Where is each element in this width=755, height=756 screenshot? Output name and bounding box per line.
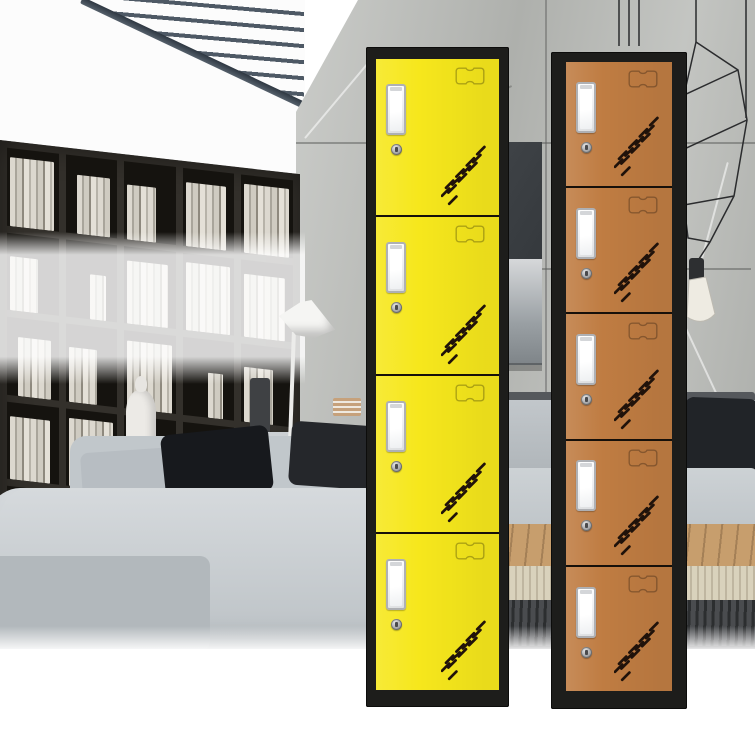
card-slot-face — [390, 246, 402, 289]
card-slot — [576, 208, 596, 259]
vent-slots-icon — [441, 460, 491, 524]
card-slot-face — [390, 405, 402, 448]
card-slot — [386, 84, 406, 135]
keyhole-lock[interactable] — [581, 268, 592, 279]
card-slot-face — [390, 88, 402, 131]
card-slot-face — [580, 212, 592, 255]
card-slot — [386, 559, 406, 610]
vent-slots-icon — [614, 619, 664, 683]
card-slot — [576, 460, 596, 511]
recessed-handle-icon[interactable] — [628, 449, 658, 467]
keyhole-lock[interactable] — [391, 144, 402, 155]
card-slot-face — [390, 563, 402, 606]
vent-slots-icon — [441, 143, 491, 207]
yellow-locker-door-4[interactable] — [376, 532, 499, 690]
recessed-handle-icon[interactable] — [455, 384, 485, 402]
product-scene — [0, 0, 755, 756]
keyhole-lock[interactable] — [581, 647, 592, 658]
recessed-handle-icon[interactable] — [628, 322, 658, 340]
yellow-locker-door-3[interactable] — [376, 374, 499, 532]
yellow-locker[interactable] — [366, 47, 509, 707]
vent-slots-icon — [614, 114, 664, 178]
brown-locker[interactable] — [551, 52, 687, 709]
vent-slots-icon — [441, 618, 491, 682]
keyhole-lock[interactable] — [391, 619, 402, 630]
keyhole-lock[interactable] — [391, 302, 402, 313]
vent-slots-icon — [441, 302, 491, 366]
vent-slots-icon — [614, 367, 664, 431]
yellow-locker-door-2[interactable] — [376, 215, 499, 373]
yellow-locker-door-1[interactable] — [376, 59, 499, 215]
card-slot-face — [580, 338, 592, 381]
card-slot-face — [580, 464, 592, 507]
brown-locker-door-2[interactable] — [566, 186, 672, 312]
keyhole-lock[interactable] — [581, 520, 592, 531]
card-slot — [386, 401, 406, 452]
card-slot-face — [580, 86, 592, 129]
brown-locker-door-3[interactable] — [566, 312, 672, 438]
recessed-handle-icon[interactable] — [628, 575, 658, 593]
card-slot — [386, 242, 406, 293]
recessed-handle-icon[interactable] — [455, 67, 485, 85]
vent-slots-icon — [614, 493, 664, 557]
card-slot — [576, 82, 596, 133]
lockers-layer — [0, 0, 755, 756]
brown-locker-door-1[interactable] — [566, 62, 672, 186]
card-slot — [576, 587, 596, 638]
keyhole-lock[interactable] — [581, 394, 592, 405]
keyhole-lock[interactable] — [581, 142, 592, 153]
recessed-handle-icon[interactable] — [628, 196, 658, 214]
keyhole-lock[interactable] — [391, 461, 402, 472]
card-slot-face — [580, 591, 592, 634]
vent-slots-icon — [614, 240, 664, 304]
recessed-handle-icon[interactable] — [455, 542, 485, 560]
recessed-handle-icon[interactable] — [455, 225, 485, 243]
recessed-handle-icon[interactable] — [628, 70, 658, 88]
brown-locker-door-4[interactable] — [566, 439, 672, 565]
brown-locker-door-5[interactable] — [566, 565, 672, 691]
card-slot — [576, 334, 596, 385]
